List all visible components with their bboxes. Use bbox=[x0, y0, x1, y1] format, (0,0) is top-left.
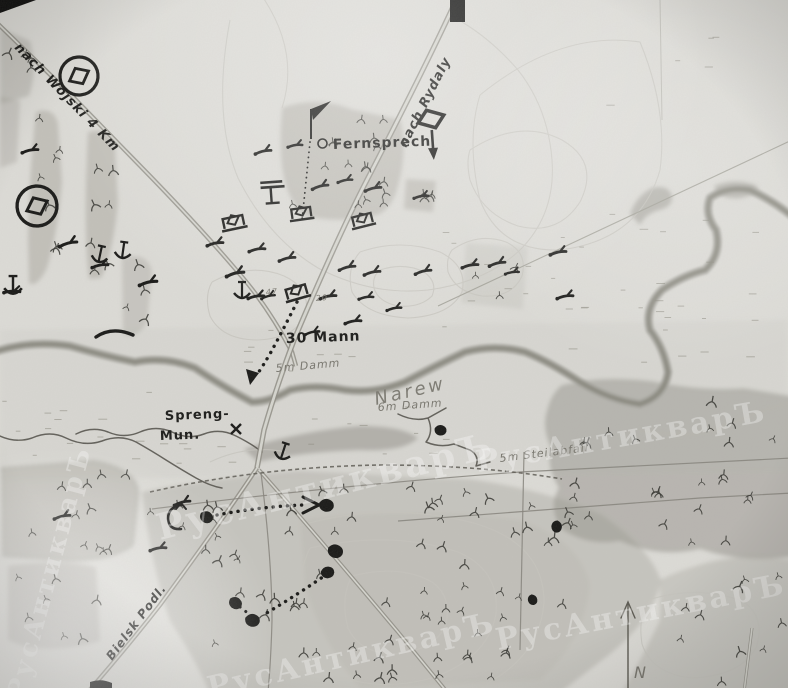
film-grain-overlay bbox=[0, 0, 788, 688]
map-svg: nach Wojski 4 Kmnach RydalyFernsprech30 … bbox=[0, 0, 788, 688]
scanned-map-photo: nach Wojski 4 Kmnach RydalyFernsprech30 … bbox=[0, 0, 788, 688]
